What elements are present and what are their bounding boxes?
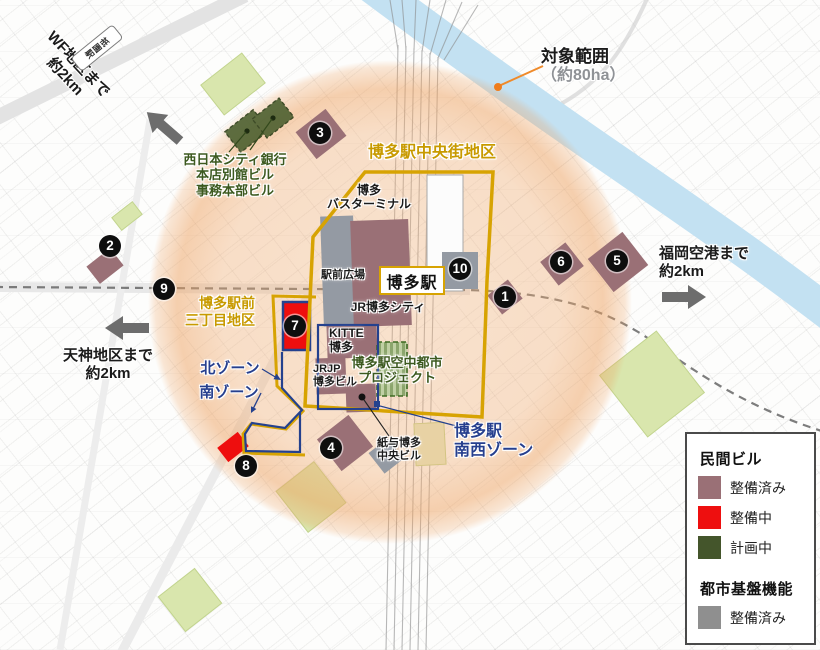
map-canvas: WF地区まで 約2km 祇園駅 対象範囲 （約80ha） 西日本シティ銀行 本店…	[0, 0, 820, 650]
target-area-label: 対象範囲 （約80ha）	[541, 47, 625, 86]
ekimae-hiroba-label: 駅前広場	[321, 269, 365, 282]
map-marker-2: 2	[99, 235, 121, 257]
map-marker-3: 3	[309, 122, 331, 144]
sanchome-district-label: 博多駅前 三丁目地区	[185, 295, 255, 328]
arrow-to-airport	[662, 285, 706, 309]
kamiyo-building-label: 紙与博多 中央ビル	[377, 437, 421, 463]
legend-item: 整備中	[698, 506, 814, 529]
legend-section-title: 都市基盤機能	[700, 578, 814, 599]
jrjp-label: JRJP 博多ビル	[313, 363, 357, 389]
map-marker-1: 1	[494, 286, 516, 308]
map-marker-7: 7	[284, 315, 306, 337]
airport-distance-note: 福岡空港まで 約2km	[659, 245, 749, 280]
legend-item: 整備済み	[698, 476, 814, 499]
legend-swatch	[698, 606, 721, 629]
nansei-zone-label: 博多駅 南西ゾーン	[454, 423, 533, 461]
legend-label: 整備済み	[730, 478, 786, 498]
legend-swatch	[698, 476, 721, 499]
map-marker-6: 6	[550, 251, 572, 273]
legend-item: 計画中	[698, 536, 814, 559]
legend-item: 整備済み	[698, 606, 814, 629]
sky-city-project-label: 博多駅空中都市 プロジェクト	[351, 355, 442, 386]
legend-swatch	[698, 536, 721, 559]
hakata-station-label: 博多駅	[386, 269, 437, 293]
legend-label: 整備中	[730, 508, 772, 528]
tenjin-distance-note: 天神地区まで 約2km	[62, 347, 154, 382]
legend-section-title: 民間ビル	[700, 448, 814, 469]
map-marker-10: 10	[449, 258, 471, 280]
bus-terminal-label: 博多 バスターミナル	[327, 183, 411, 211]
hakata-station-box: 博多駅	[379, 266, 445, 295]
legend-label: 整備済み	[730, 608, 786, 628]
kita-zone-label: 北ゾーン	[200, 360, 259, 378]
map-marker-5: 5	[606, 250, 628, 272]
nishinippon-bank-label: 西日本シティ銀行 本店別館ビル 事務本部ビル	[183, 152, 286, 198]
legend-label: 計画中	[730, 538, 772, 558]
chuogai-district-label: 博多駅中央街地区	[368, 144, 496, 163]
kitte-label: KITTE 博多	[329, 326, 364, 354]
minami-zone-label: 南ゾーン	[199, 384, 258, 402]
map-marker-8: 8	[235, 455, 257, 477]
map-marker-4: 4	[320, 437, 342, 459]
map-legend: 民間ビル整備済み整備中計画中都市基盤機能整備済み	[685, 432, 816, 645]
legend-swatch	[698, 506, 721, 529]
jr-hakata-city-label: JR博多シティ	[351, 300, 426, 314]
map-marker-9: 9	[153, 278, 175, 300]
